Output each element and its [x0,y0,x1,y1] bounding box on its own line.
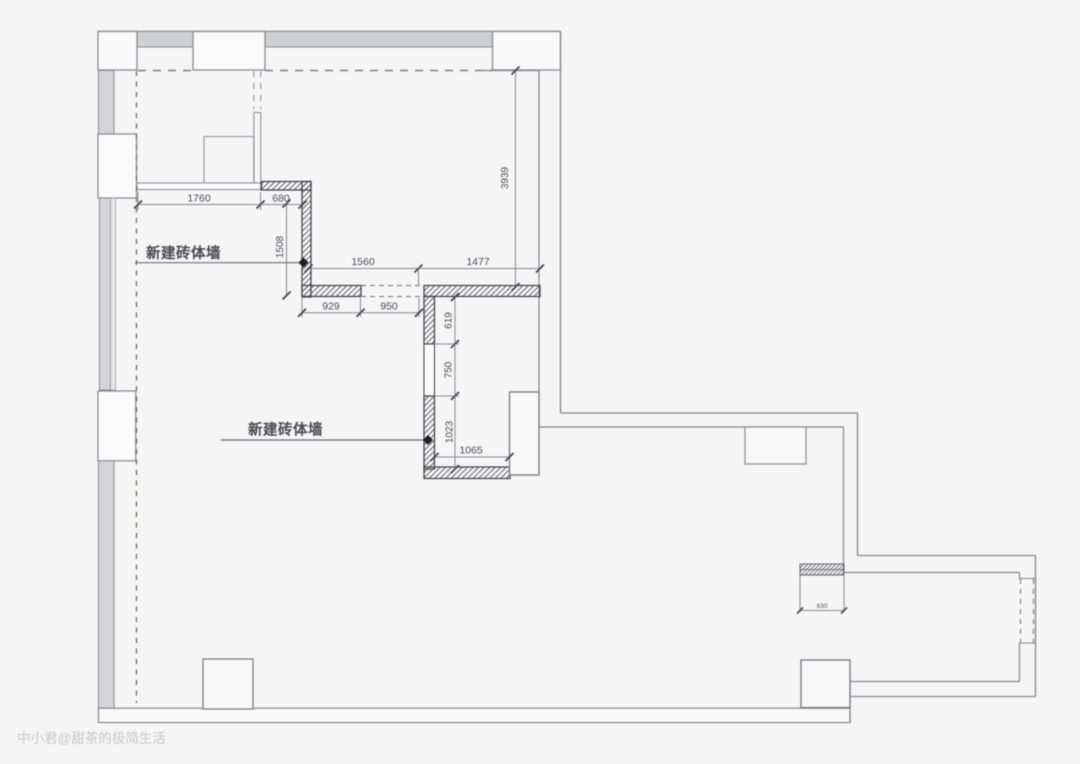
svg-text:3939: 3939 [500,166,511,189]
svg-text:1560: 1560 [351,256,375,268]
svg-text:1477: 1477 [466,256,490,268]
svg-text:750: 750 [444,361,455,378]
svg-text:630: 630 [817,603,828,610]
svg-text:1065: 1065 [459,445,483,457]
svg-text:950: 950 [380,301,398,313]
svg-text:新建砖体墙: 新建砖体墙 [248,421,323,439]
svg-text:929: 929 [322,301,340,313]
svg-text:619: 619 [444,312,455,329]
svg-text:中小君@甜茶的极简生活: 中小君@甜茶的极简生活 [17,730,166,746]
svg-text:1760: 1760 [187,193,211,205]
svg-text:1023: 1023 [445,420,456,443]
svg-text:新建砖体墙: 新建砖体墙 [146,244,221,262]
svg-text:1508: 1508 [275,235,286,258]
